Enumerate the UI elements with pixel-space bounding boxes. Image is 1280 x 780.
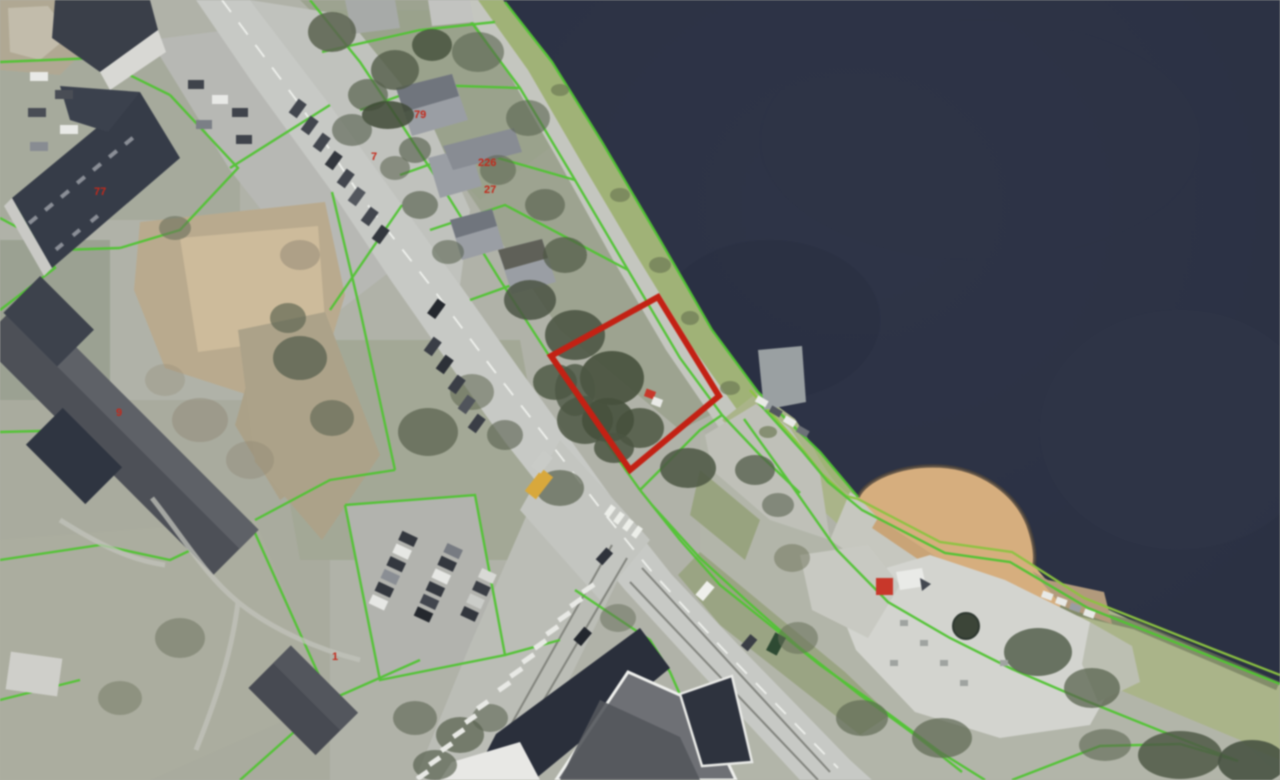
svg-text:226: 226 xyxy=(478,157,496,169)
svg-text:7: 7 xyxy=(371,151,377,163)
svg-text:1: 1 xyxy=(332,651,338,663)
svg-text:77: 77 xyxy=(94,186,106,198)
svg-text:9: 9 xyxy=(116,407,122,419)
svg-text:79: 79 xyxy=(414,109,426,121)
svg-text:27: 27 xyxy=(484,184,496,196)
